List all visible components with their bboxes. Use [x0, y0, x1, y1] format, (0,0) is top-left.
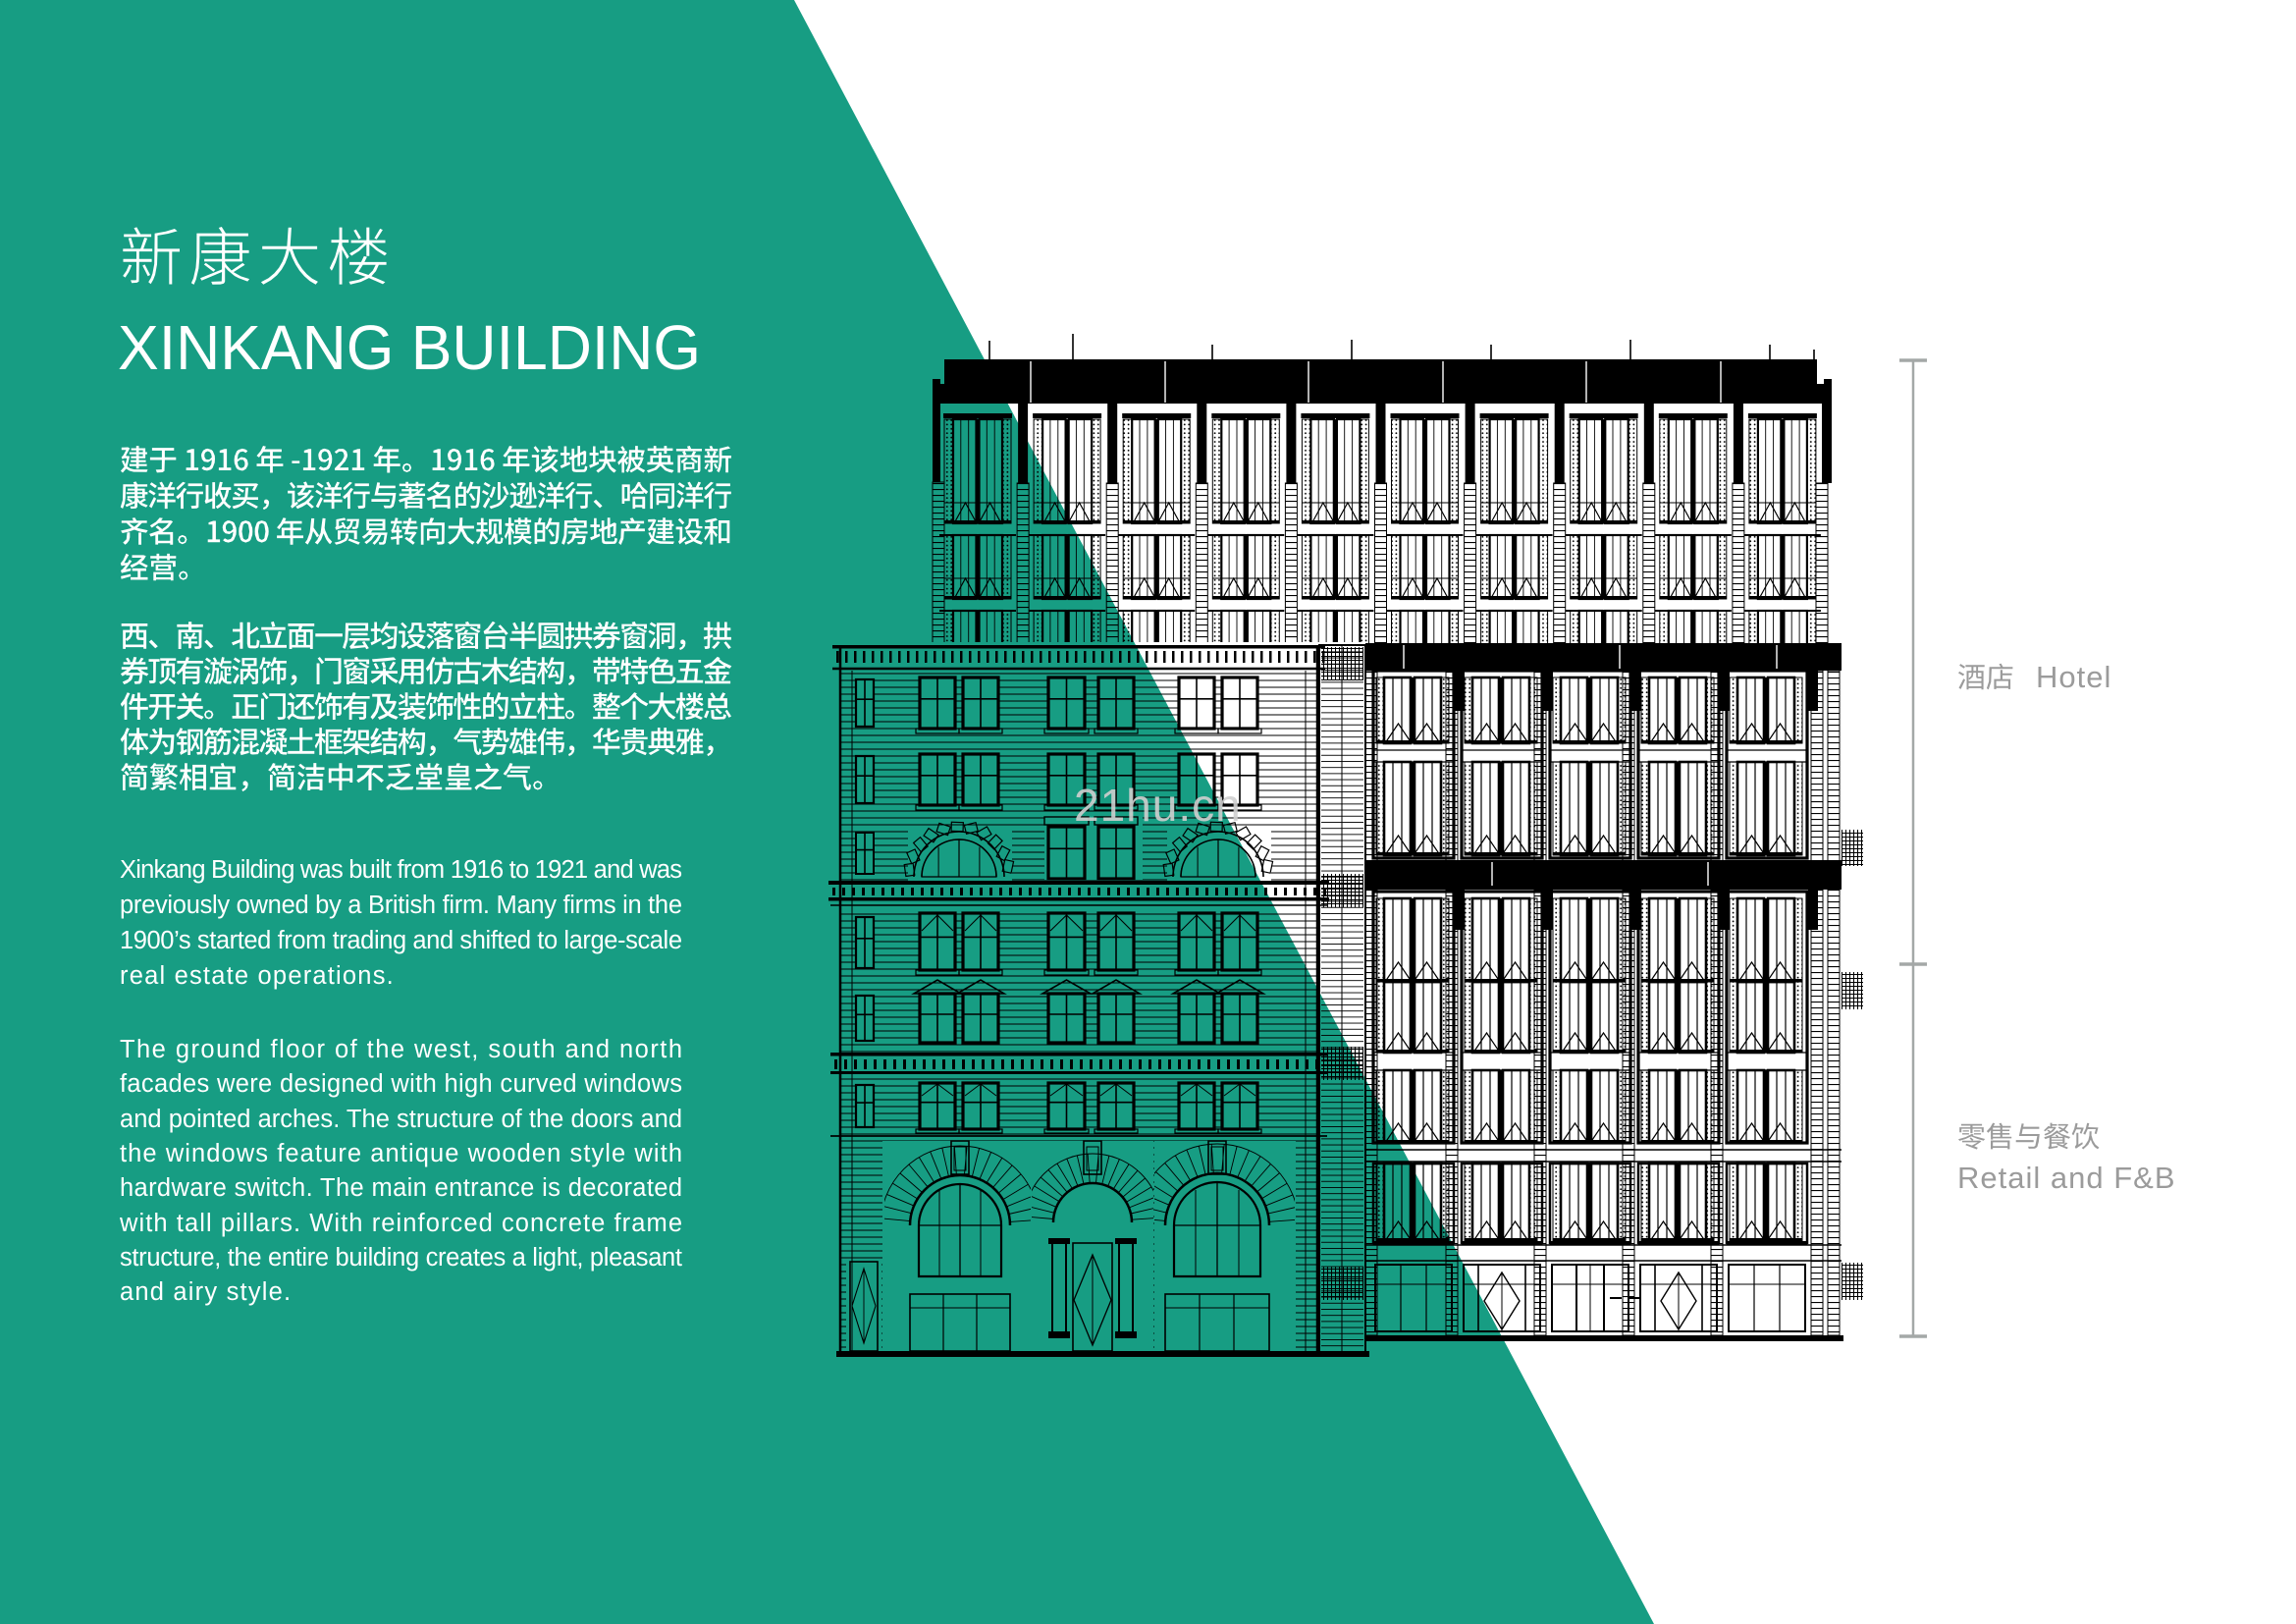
- svg-text:facades were designed with hig: facades were designed with high curved w…: [120, 1070, 682, 1098]
- svg-text:and pointed arches. The struct: and pointed arches. The structure of the…: [120, 1106, 682, 1133]
- svg-text:structure, the entire building: structure, the entire building creates a…: [120, 1244, 682, 1272]
- svg-text:The ground floor of the west,: The ground floor of the west, south and …: [120, 1036, 682, 1063]
- svg-text:previously owned by a British: previously owned by a British firm. Many…: [120, 892, 682, 919]
- svg-text:Xinkang Building was built fro: Xinkang Building was built from 1916 to …: [120, 856, 682, 884]
- svg-text:real estate operations.: real estate operations.: [120, 962, 395, 990]
- svg-text:hardware switch. The main entr: hardware switch. The main entrance is de…: [120, 1174, 682, 1202]
- svg-text:the windows feature antique wo: the windows feature antique wooden style…: [120, 1140, 682, 1167]
- svg-text:1900’s started from trading an: 1900’s started from trading and shifted …: [120, 927, 682, 954]
- svg-text:21hu.cn: 21hu.cn: [1074, 780, 1242, 831]
- svg-text:Hotel: Hotel: [2036, 660, 2111, 694]
- svg-text:and airy style.: and airy style.: [120, 1278, 292, 1306]
- svg-text:XINKANG BUILDING: XINKANG BUILDING: [118, 312, 701, 383]
- svg-text:Retail and F&B: Retail and F&B: [1957, 1161, 2176, 1195]
- svg-text:with tall pillars. With reinfo: with tall pillars. With reinforced concr…: [119, 1210, 682, 1237]
